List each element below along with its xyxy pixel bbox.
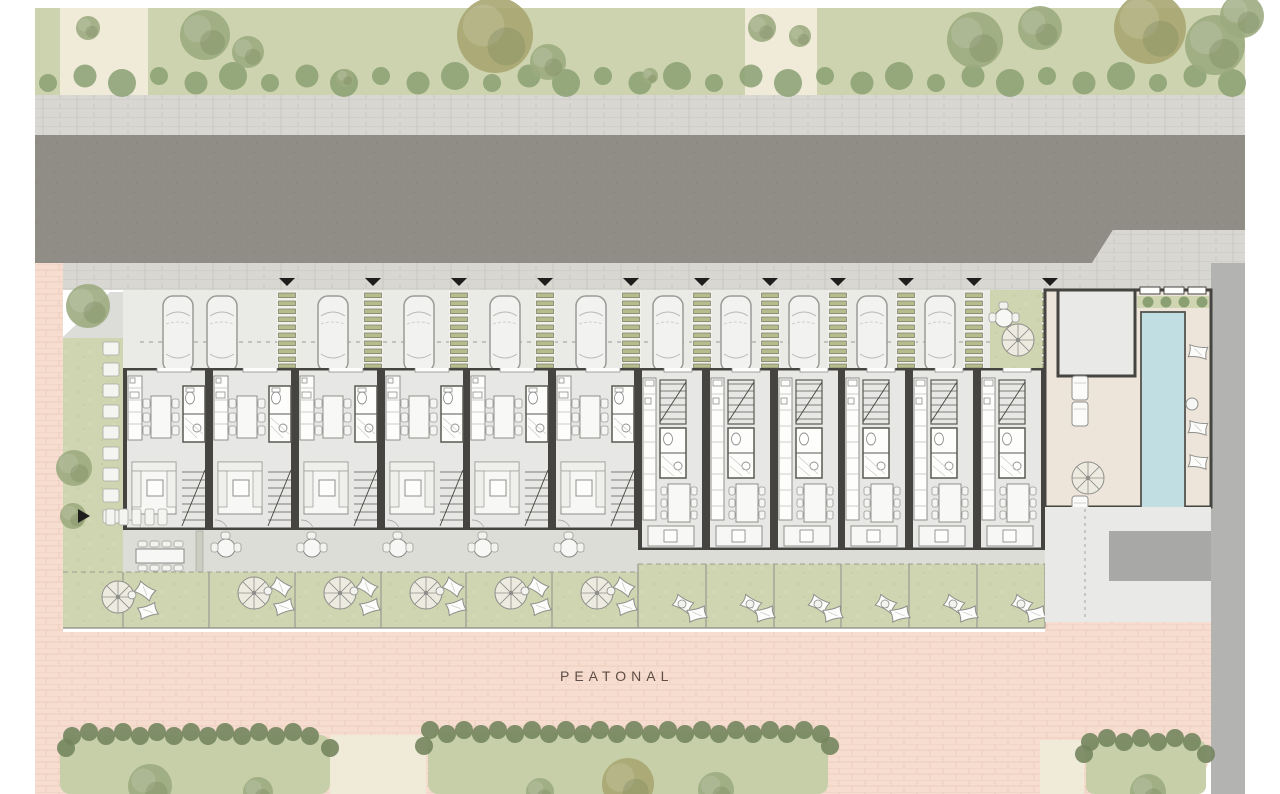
- street-shrub: [1073, 72, 1096, 95]
- tree: [798, 34, 809, 45]
- amenity-garage: [1058, 290, 1135, 376]
- hedge-shrub: [438, 725, 456, 743]
- street-shrub: [885, 62, 913, 90]
- entry-walkway: [828, 291, 848, 369]
- hedge-shrub: [216, 723, 234, 741]
- stepping-stone: [103, 405, 119, 418]
- entry-walkway: [964, 291, 984, 369]
- tree: [648, 74, 656, 82]
- hedge-shrub: [1149, 733, 1167, 751]
- street-shrub: [441, 62, 469, 90]
- unit-type-b: [638, 367, 706, 550]
- entry-walkway: [760, 291, 780, 369]
- unit-type-a: [209, 367, 295, 530]
- tree: [487, 27, 525, 65]
- hedge-shrub: [523, 721, 541, 739]
- street-shrub: [150, 67, 168, 85]
- street-shrub: [1149, 74, 1167, 92]
- hedge-shrub: [182, 723, 200, 741]
- entry-walkway: [363, 291, 383, 369]
- hedge-shrub: [165, 727, 183, 745]
- hedge-shrub: [710, 725, 728, 743]
- garden-grill-icon: [1017, 600, 1025, 608]
- garden-grill-icon: [949, 600, 957, 608]
- unit-type-b: [977, 367, 1045, 550]
- car: [163, 296, 193, 372]
- east-gray-band: [1211, 263, 1245, 794]
- street-shrub: [261, 74, 279, 92]
- hedge-shrub: [472, 725, 490, 743]
- hedge-shrub: [693, 721, 711, 739]
- pedestrian-strip-west: [35, 263, 63, 794]
- unit-type-a: [295, 367, 381, 530]
- garden-grill-icon: [607, 587, 615, 595]
- street-shrub: [372, 67, 390, 85]
- hedge-shrub: [284, 723, 302, 741]
- amenity-area: [1045, 287, 1211, 622]
- tree: [70, 464, 88, 482]
- terrace-strip-b: [638, 550, 1045, 564]
- tree: [1238, 12, 1260, 34]
- hedge-shrub: [301, 727, 319, 745]
- street-shrub: [1038, 67, 1056, 85]
- south-path-left: [330, 735, 426, 794]
- car: [721, 296, 751, 372]
- stepping-stone: [103, 384, 119, 397]
- tree: [544, 58, 562, 76]
- hedge-shrub: [199, 727, 217, 745]
- hedge-shrub: [1115, 733, 1133, 751]
- street-shrub: [816, 67, 834, 85]
- hedge-shrub: [557, 721, 575, 739]
- street-shrub: [74, 65, 97, 88]
- stepping-stone: [119, 509, 128, 525]
- site-plan-drawing: PEATONAL: [0, 0, 1280, 794]
- planter-shrub: [1179, 297, 1190, 308]
- stepping-stone: [103, 426, 119, 439]
- tree: [1036, 24, 1058, 46]
- street-shrub: [185, 72, 208, 95]
- car: [404, 296, 434, 372]
- street-shrub: [927, 74, 945, 92]
- hedge-shrub: [659, 721, 677, 739]
- building-block: [63, 278, 1111, 628]
- hedge-shrub: [131, 727, 149, 745]
- garden-grill-icon: [436, 587, 444, 595]
- hedge-shrub: [1075, 745, 1093, 763]
- street-shrub: [663, 62, 691, 90]
- car: [318, 296, 348, 372]
- hedge-shrub: [608, 725, 626, 743]
- garden-grill-icon: [350, 587, 358, 595]
- unit-type-a: [466, 367, 552, 530]
- tree: [245, 49, 261, 65]
- hedge-shrub: [250, 723, 268, 741]
- hedge-shrub: [778, 725, 796, 743]
- car: [789, 296, 819, 372]
- pool-lounger: [1072, 402, 1088, 426]
- street-shrub: [108, 69, 136, 97]
- unit-type-b: [841, 367, 909, 550]
- street-shrub: [705, 74, 723, 92]
- stepping-stone: [103, 363, 119, 376]
- tree: [759, 25, 773, 39]
- entry-walkway: [535, 291, 555, 369]
- garden-grill-icon: [814, 600, 822, 608]
- tree: [1143, 21, 1179, 57]
- street-shrub: [39, 74, 57, 92]
- garden-grill-icon: [521, 587, 529, 595]
- hedge-shrub: [1183, 733, 1201, 751]
- hedge-shrub: [761, 721, 779, 739]
- car: [490, 296, 520, 372]
- unit-type-a: [123, 367, 209, 530]
- hedge-shrub: [625, 721, 643, 739]
- planter-shrub: [1197, 297, 1208, 308]
- car: [653, 296, 683, 372]
- tree: [1209, 39, 1239, 69]
- pool-parasol: [1072, 462, 1104, 494]
- stepping-stone: [132, 509, 141, 525]
- hedge-shrub: [321, 739, 339, 757]
- housing-units: [123, 367, 1045, 550]
- entry-walkway: [277, 291, 297, 369]
- pool-lounger: [1188, 345, 1207, 359]
- entry-walkway: [896, 291, 916, 369]
- ramp: [1109, 531, 1211, 581]
- planter-shrub: [1143, 297, 1154, 308]
- entry-walkway: [621, 291, 641, 369]
- road: [35, 135, 1245, 263]
- car: [576, 296, 606, 372]
- hedge-shrub: [57, 739, 75, 757]
- tree: [343, 76, 352, 85]
- pool-terrace-windows: [1140, 287, 1206, 294]
- stepping-stone: [103, 342, 119, 355]
- swimming-pool: [1141, 312, 1185, 508]
- hedge-shrub: [574, 725, 592, 743]
- stepping-stone: [103, 447, 119, 460]
- hedge-shrub: [744, 725, 762, 743]
- hedge-shrub: [591, 721, 609, 739]
- hedge-shrub: [97, 727, 115, 745]
- pedestrian-zone-label: PEATONAL: [560, 668, 673, 684]
- hedge-shrub: [114, 723, 132, 741]
- street-shrub: [296, 65, 319, 88]
- unit-type-b: [774, 367, 842, 550]
- garden-grill-icon: [678, 600, 686, 608]
- hedge-shrub: [540, 725, 558, 743]
- hedge-shrub: [1098, 729, 1116, 747]
- south-garden-left: [60, 735, 330, 794]
- street-shrub: [407, 72, 430, 95]
- hedge-shrub: [506, 725, 524, 743]
- car: [207, 296, 237, 372]
- street-shrub: [851, 72, 874, 95]
- courtyard-parasol: [1002, 324, 1034, 356]
- hedge-shrub: [80, 723, 98, 741]
- stepping-stone: [158, 509, 167, 525]
- hedge-shrub: [148, 723, 166, 741]
- tree: [86, 26, 98, 38]
- hedge-shrub: [489, 721, 507, 739]
- street-shrub: [740, 65, 763, 88]
- hedge-shrub: [795, 721, 813, 739]
- hedge-shrub: [676, 725, 694, 743]
- street-shrub: [483, 74, 501, 92]
- street-shrub: [774, 69, 802, 97]
- unit-type-b: [706, 367, 774, 550]
- tree: [200, 30, 225, 55]
- hedge-shrub: [1197, 745, 1215, 763]
- hedge-shrub: [727, 721, 745, 739]
- stepping-stone: [106, 509, 115, 525]
- entry-walkway: [449, 291, 469, 369]
- car: [925, 296, 955, 372]
- hedge-shrub: [642, 725, 660, 743]
- pool-lounger: [1072, 376, 1088, 400]
- garden-grill-icon: [746, 600, 754, 608]
- hedge-shrub: [1166, 729, 1184, 747]
- car: [857, 296, 887, 372]
- hedge-shrub: [267, 727, 285, 745]
- hedge-shrub: [821, 737, 839, 755]
- hedge-shrub: [233, 727, 251, 745]
- site-plan: PEATONAL: [0, 0, 1280, 794]
- garden-grill-icon: [128, 591, 136, 599]
- hedge-shrub: [455, 721, 473, 739]
- tree: [969, 34, 997, 62]
- garden-grill-icon: [264, 587, 272, 595]
- planter-shrub: [1161, 297, 1172, 308]
- stepping-stone: [145, 509, 154, 525]
- hedge-shrub: [1132, 729, 1150, 747]
- street-shrub: [996, 69, 1024, 97]
- street-shrub: [594, 67, 612, 85]
- hedge-shrub: [421, 721, 439, 739]
- hedge-shrub: [415, 737, 433, 755]
- garden-grill-icon: [881, 600, 889, 608]
- north-sidewalk: [35, 95, 1245, 135]
- unit-type-a: [552, 367, 638, 530]
- entry-walkway: [692, 291, 712, 369]
- pool-lounger: [1188, 421, 1207, 435]
- pool-side-table: [1186, 398, 1198, 410]
- tree: [84, 302, 106, 324]
- stepping-stone: [103, 489, 119, 502]
- unit-type-a: [381, 367, 467, 530]
- unit-type-b: [909, 367, 977, 550]
- street-shrub: [1107, 62, 1135, 90]
- stepping-stone: [103, 468, 119, 481]
- street-shrub: [962, 65, 985, 88]
- pool-lounger: [1188, 455, 1207, 469]
